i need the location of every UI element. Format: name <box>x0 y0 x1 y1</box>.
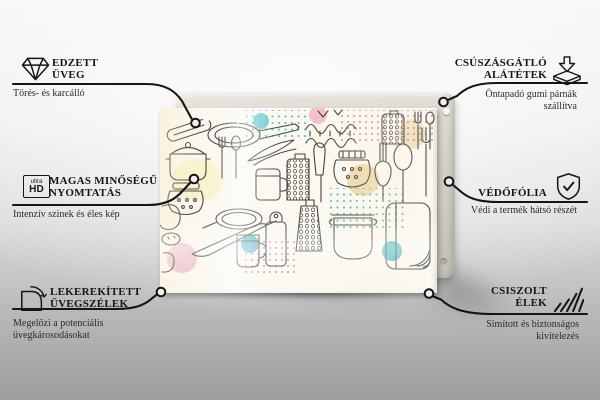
feature-title-line: ALÁTÉTEK <box>417 69 547 81</box>
feature-subtitle: Öntapadó gumi párnák szállítva <box>477 89 577 113</box>
glass-board-photo <box>160 93 460 303</box>
feature-title-line: VÉDŐFÓLIA <box>417 187 547 199</box>
product-infographic: EDZETT ÜVEG Törés- és karcálló ultra HD … <box>0 0 600 400</box>
feature-subtitle: Védi a termék hátsó részét <box>471 205 577 217</box>
feature-title-line: ÉLEK <box>417 297 547 309</box>
ultra-hd-icon: ultra HD <box>23 175 50 198</box>
hatched-edges-icon <box>552 285 584 318</box>
feature-title-line: LEKEREKÍTETT <box>50 286 141 298</box>
feature-title-line: ÜVEGSZÉLEK <box>50 298 141 310</box>
feature-subtitle: Simított és biztonságos kivitelezés <box>459 319 579 343</box>
ultra-hd-icon-text-bottom: HD <box>29 185 44 195</box>
feature-title-line: CSISZOLT <box>417 285 547 297</box>
feature-title-line: CSÚSZÁSGÁTLÓ <box>417 57 547 69</box>
anti-slip-pad-icon <box>552 55 582 92</box>
feature-subtitle: Intenzív szinek és éles kép <box>13 209 120 221</box>
rubber-pad-bottom <box>440 258 447 265</box>
rounded-corner-icon <box>18 285 48 318</box>
shield-check-icon <box>555 172 582 206</box>
feature-title-line: MAGAS MINŐSÉGŰ <box>49 175 157 187</box>
feature-title-line: EDZETT <box>52 57 98 69</box>
feature-title-line: ÜVEG <box>52 69 98 81</box>
feature-subtitle: Megelőzi a potenciális üvegkárosodásokat <box>13 318 138 342</box>
feature-title-line: NYOMTATÁS <box>49 187 157 199</box>
feature-subtitle: Törés- és karcálló <box>13 88 85 100</box>
rubber-pad-top <box>443 108 450 115</box>
glass-board-front <box>160 108 437 293</box>
kitchen-doodle-pattern <box>160 108 437 293</box>
diamond-icon <box>21 56 50 87</box>
